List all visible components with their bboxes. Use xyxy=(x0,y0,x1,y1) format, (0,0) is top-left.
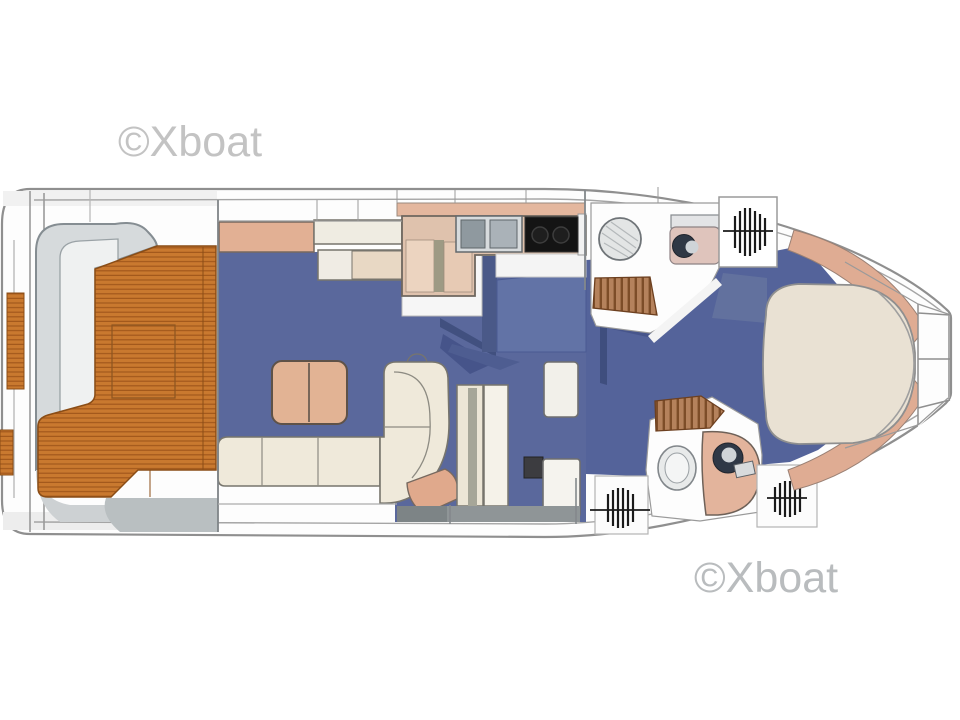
svg-text:©Xboat: ©Xboat xyxy=(118,118,262,166)
svg-text:©Xboat: ©Xboat xyxy=(694,554,838,602)
